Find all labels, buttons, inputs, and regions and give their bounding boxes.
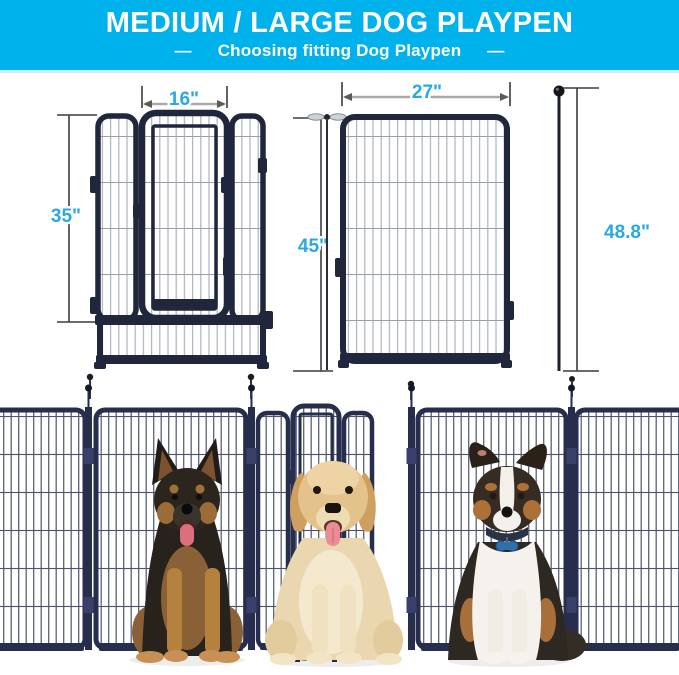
door-width-measure: 16" xyxy=(142,86,227,110)
stake-length-label: 48.8" xyxy=(604,222,650,243)
header-banner: MEDIUM / LARGE DOG PLAYPEN —Choosing fit… xyxy=(0,0,679,73)
panel-height-label-45: 45" xyxy=(298,236,328,257)
panel-connector xyxy=(407,385,417,651)
door-side-panel-left xyxy=(98,116,136,320)
page-title: MEDIUM / LARGE DOG PLAYPEN xyxy=(0,8,679,38)
panel-width-label: 27" xyxy=(412,82,442,103)
subtitle-dash-right: — xyxy=(487,41,504,61)
panel-width-measure: 27" xyxy=(342,82,510,106)
panel-mid-bar xyxy=(95,315,268,325)
panel-connector xyxy=(247,385,257,651)
panel-connector xyxy=(84,385,94,651)
large-panel-diagram: 27" 45" xyxy=(293,82,514,400)
large-panel xyxy=(343,117,507,361)
door-side-panel-right xyxy=(232,116,263,320)
page-subtitle: —Choosing fitting Dog Playpen— xyxy=(0,41,679,61)
stake-length-measure: 48.8" xyxy=(563,88,650,371)
panel-height-label-35: 35" xyxy=(51,206,81,227)
playpen-panel xyxy=(0,410,85,648)
panel-connector xyxy=(567,385,577,651)
door-inner-frame xyxy=(153,126,216,309)
door-panel-diagram: 16" 35" xyxy=(51,86,273,399)
ground-stake-diagram: 48.8" xyxy=(554,86,651,398)
panel-bottom-bar xyxy=(96,355,267,364)
playpen-photo xyxy=(0,385,679,668)
panel-height-measure-35: 35" xyxy=(51,115,99,322)
subtitle-dash-left: — xyxy=(175,41,192,61)
product-infographic: MEDIUM / LARGE DOG PLAYPEN —Choosing fit… xyxy=(0,0,679,675)
graphic-canvas: 16" 35" xyxy=(0,0,679,675)
door-width-label: 16" xyxy=(169,89,199,110)
playpen-panel xyxy=(576,410,679,648)
subtitle-text: Choosing fitting Dog Playpen xyxy=(218,41,462,60)
